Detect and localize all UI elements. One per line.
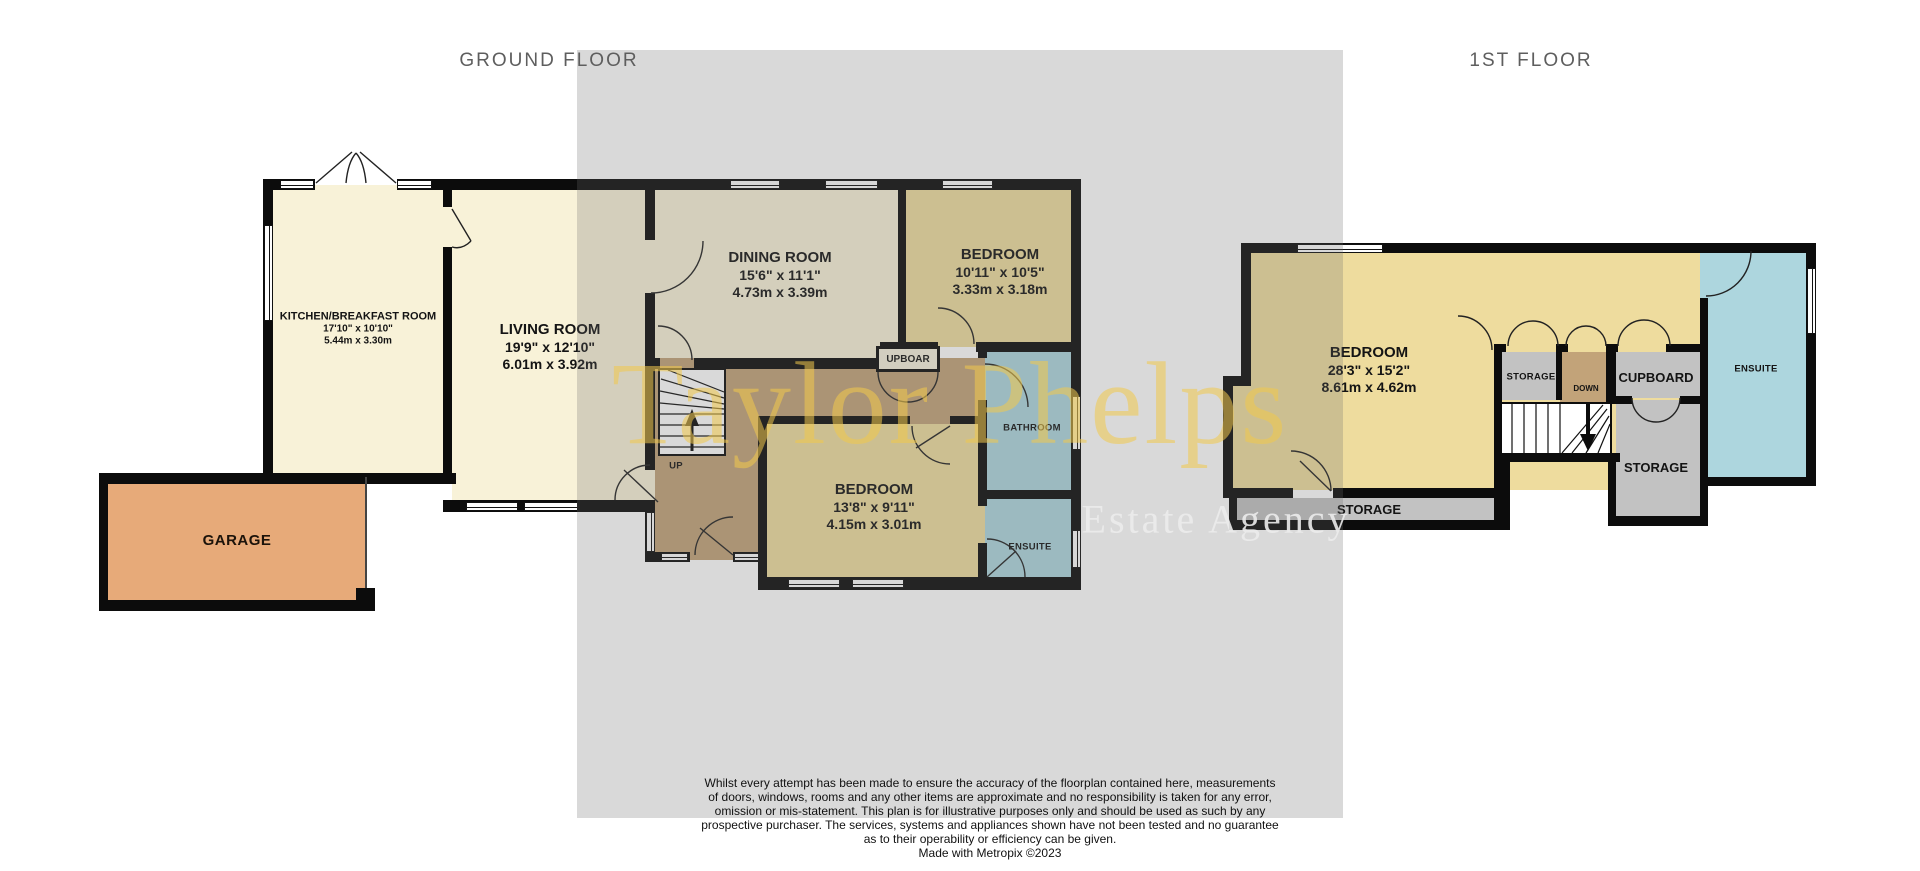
bathroom-label: BATHROOM: [1003, 422, 1061, 433]
kitchen-label: KITCHEN/BREAKFAST ROOM 17'10" x 10'10" 5…: [280, 310, 436, 347]
storage-top-label: STORAGE: [1507, 371, 1556, 382]
room-dims-metric: 8.61m x 4.62m: [1322, 379, 1417, 396]
up-arrow-icon: [685, 409, 699, 451]
living-room-label: LIVING ROOM 19'9" x 12'10" 6.01m x 3.92m: [500, 321, 601, 373]
disclaimer-line: of doors, windows, rooms and any other i…: [620, 790, 1360, 804]
cupboard-label: CUPBOARD: [1618, 370, 1693, 386]
ensuite-1f-label: ENSUITE: [1734, 363, 1777, 374]
room-dims-metric: 6.01m x 3.92m: [500, 356, 601, 373]
down-arrow-icon: [1580, 404, 1596, 451]
room-name: DINING ROOM: [728, 249, 831, 267]
disclaimer-line: prospective purchaser. The services, sys…: [620, 818, 1360, 832]
bedroom-1f-label: BEDROOM 28'3" x 15'2" 8.61m x 4.62m: [1322, 344, 1417, 396]
room-dims-imperial: 28'3" x 15'2": [1322, 362, 1417, 379]
bedroom-top-right-label: BEDROOM 10'11" x 10'5" 3.33m x 3.18m: [953, 246, 1048, 298]
room-dims-imperial: 19'9" x 12'10": [500, 339, 601, 356]
room-dims-imperial: 15'6" x 11'1": [728, 267, 831, 284]
dining-room-label: DINING ROOM 15'6" x 11'1" 4.73m x 3.39m: [728, 249, 831, 301]
upboar-label: UPBOAR: [886, 354, 929, 365]
room-dims-metric: 4.73m x 3.39m: [728, 284, 831, 301]
door-arcs-and-stairs-svg: [0, 0, 1920, 871]
ensuite-gf-label: ENSUITE: [1008, 541, 1051, 552]
storage-bottom-label: STORAGE: [1337, 502, 1401, 518]
room-dims-metric: 3.33m x 3.18m: [953, 281, 1048, 298]
room-dims-metric: 4.15m x 3.01m: [827, 516, 922, 533]
room-dims-imperial: 13'8" x 9'11": [827, 499, 922, 516]
ground-floor-title: GROUND FLOOR: [459, 50, 638, 72]
room-dims-metric: 5.44m x 3.30m: [280, 336, 436, 348]
credit-line: Made with Metropix ©2023: [620, 846, 1360, 860]
room-dims-imperial: 17'10" x 10'10": [280, 324, 436, 336]
up-label: UP: [669, 460, 683, 471]
disclaimer-line: Whilst every attempt has been made to en…: [620, 776, 1360, 790]
room-name: BEDROOM: [953, 246, 1048, 264]
upboar-cupboard: UPBOAR: [876, 346, 940, 372]
room-name: KITCHEN/BREAKFAST ROOM: [280, 310, 436, 323]
room-name: LIVING ROOM: [500, 321, 601, 339]
bedroom-bottom-label: BEDROOM 13'8" x 9'11" 4.15m x 3.01m: [827, 481, 922, 533]
garage-label: GARAGE: [203, 532, 272, 550]
room-name: BEDROOM: [1322, 344, 1417, 362]
down-label: DOWN: [1573, 384, 1598, 394]
first-floor-title: 1ST FLOOR: [1469, 50, 1592, 72]
room-dims-imperial: 10'11" x 10'5": [953, 264, 1048, 281]
storage-right-label: STORAGE: [1624, 460, 1688, 476]
disclaimer-line: as to their operability or efficiency ca…: [620, 832, 1360, 846]
room-name: BEDROOM: [827, 481, 922, 499]
floorplan-canvas: UPBOAR KITCHEN/BREAKFAST ROOM 17'10" x 1…: [0, 0, 1920, 871]
disclaimer-text: Whilst every attempt has been made to en…: [620, 776, 1360, 860]
disclaimer-line: omission or mis-statement. This plan is …: [620, 804, 1360, 818]
